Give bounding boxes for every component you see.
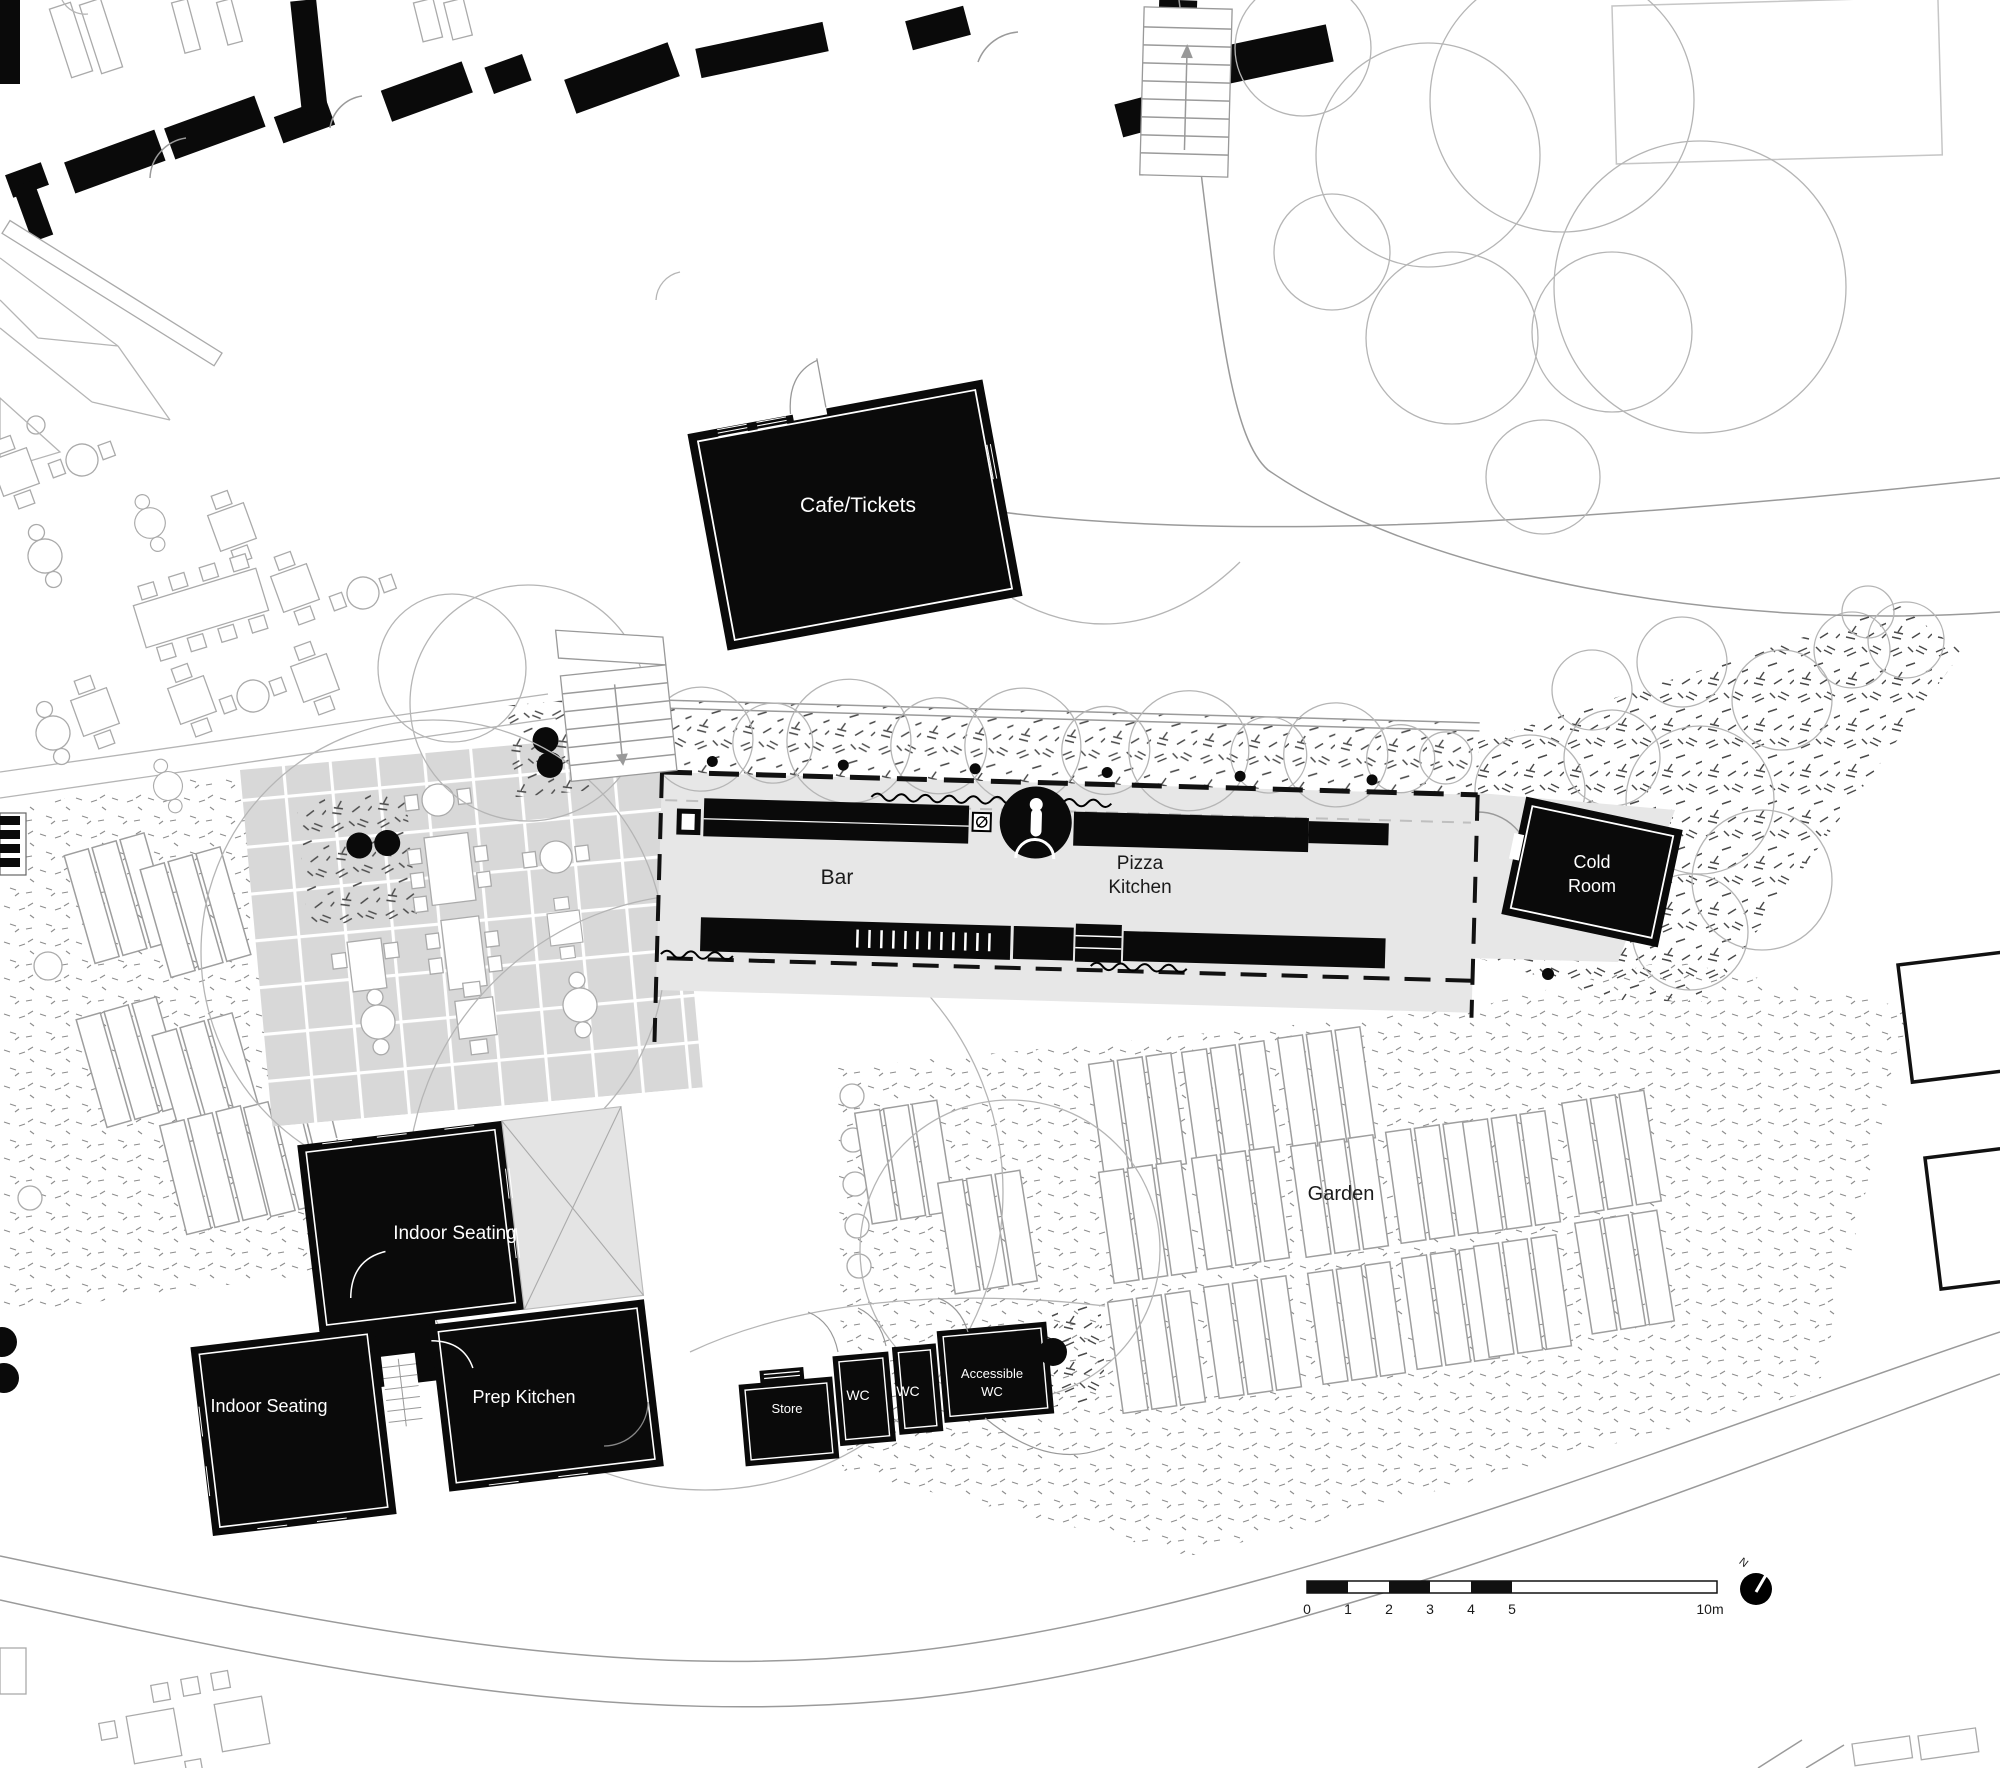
prep-kitchen-label: Prep Kitchen — [472, 1387, 575, 1407]
pizza-kitchen-label2: Kitchen — [1108, 877, 1171, 898]
scale-tick-2: 2 — [1385, 1601, 1393, 1617]
raised-bed — [1463, 1111, 1561, 1233]
raised-bed — [1204, 1276, 1302, 1398]
wc-left-label: WC — [846, 1387, 869, 1403]
planter-bed — [296, 791, 417, 926]
pizza-kitchen-label: Pizza — [1117, 853, 1164, 874]
indoor-seating-main-label: Indoor Seating — [393, 1223, 517, 1244]
raised-bed — [1308, 1262, 1406, 1384]
tree-dot — [1039, 1338, 1067, 1366]
raised-bed — [1108, 1291, 1206, 1413]
accessible-wc-label2: WC — [981, 1384, 1003, 1399]
site-plan: Garden Cold Room — [0, 0, 2000, 1768]
raised-bed — [1182, 1041, 1280, 1163]
site-plan-drawing: Garden Cold Room — [0, 0, 2000, 1768]
raised-bed — [1089, 1053, 1187, 1175]
scale-end-label: 10m — [1696, 1601, 1723, 1617]
wc-right-label: WC — [896, 1383, 919, 1399]
terrace-stair — [556, 619, 677, 781]
cold-room-label2: Room — [1568, 876, 1616, 896]
scale-tick-1: 1 — [1344, 1601, 1352, 1617]
raised-bed — [1192, 1147, 1290, 1269]
cafe-tickets-label: Cafe/Tickets — [800, 494, 916, 517]
scale-tick-0: 0 — [1303, 1601, 1311, 1617]
scale-tick-5: 5 — [1508, 1601, 1516, 1617]
indoor-seating-west-room — [190, 1325, 396, 1536]
raised-bed — [1562, 1090, 1661, 1214]
store-label: Store — [771, 1401, 802, 1416]
cold-room-label: Cold — [1573, 852, 1610, 872]
indoor-seating-west-label: Indoor Seating — [210, 1396, 327, 1416]
scale-tick-4: 4 — [1467, 1601, 1475, 1617]
accessible-wc-label: Accessible — [961, 1366, 1023, 1381]
scale-tick-3: 3 — [1426, 1601, 1434, 1617]
raised-bed — [1099, 1161, 1197, 1283]
raised-bed — [855, 1100, 954, 1224]
bar-label: Bar — [821, 866, 854, 889]
raised-bed — [1575, 1210, 1674, 1334]
north-stair — [1140, 7, 1232, 177]
garden-label: Garden — [1308, 1183, 1375, 1205]
raised-bed — [938, 1170, 1037, 1294]
raised-bed — [1474, 1235, 1572, 1357]
raised-bed — [1278, 1027, 1376, 1149]
